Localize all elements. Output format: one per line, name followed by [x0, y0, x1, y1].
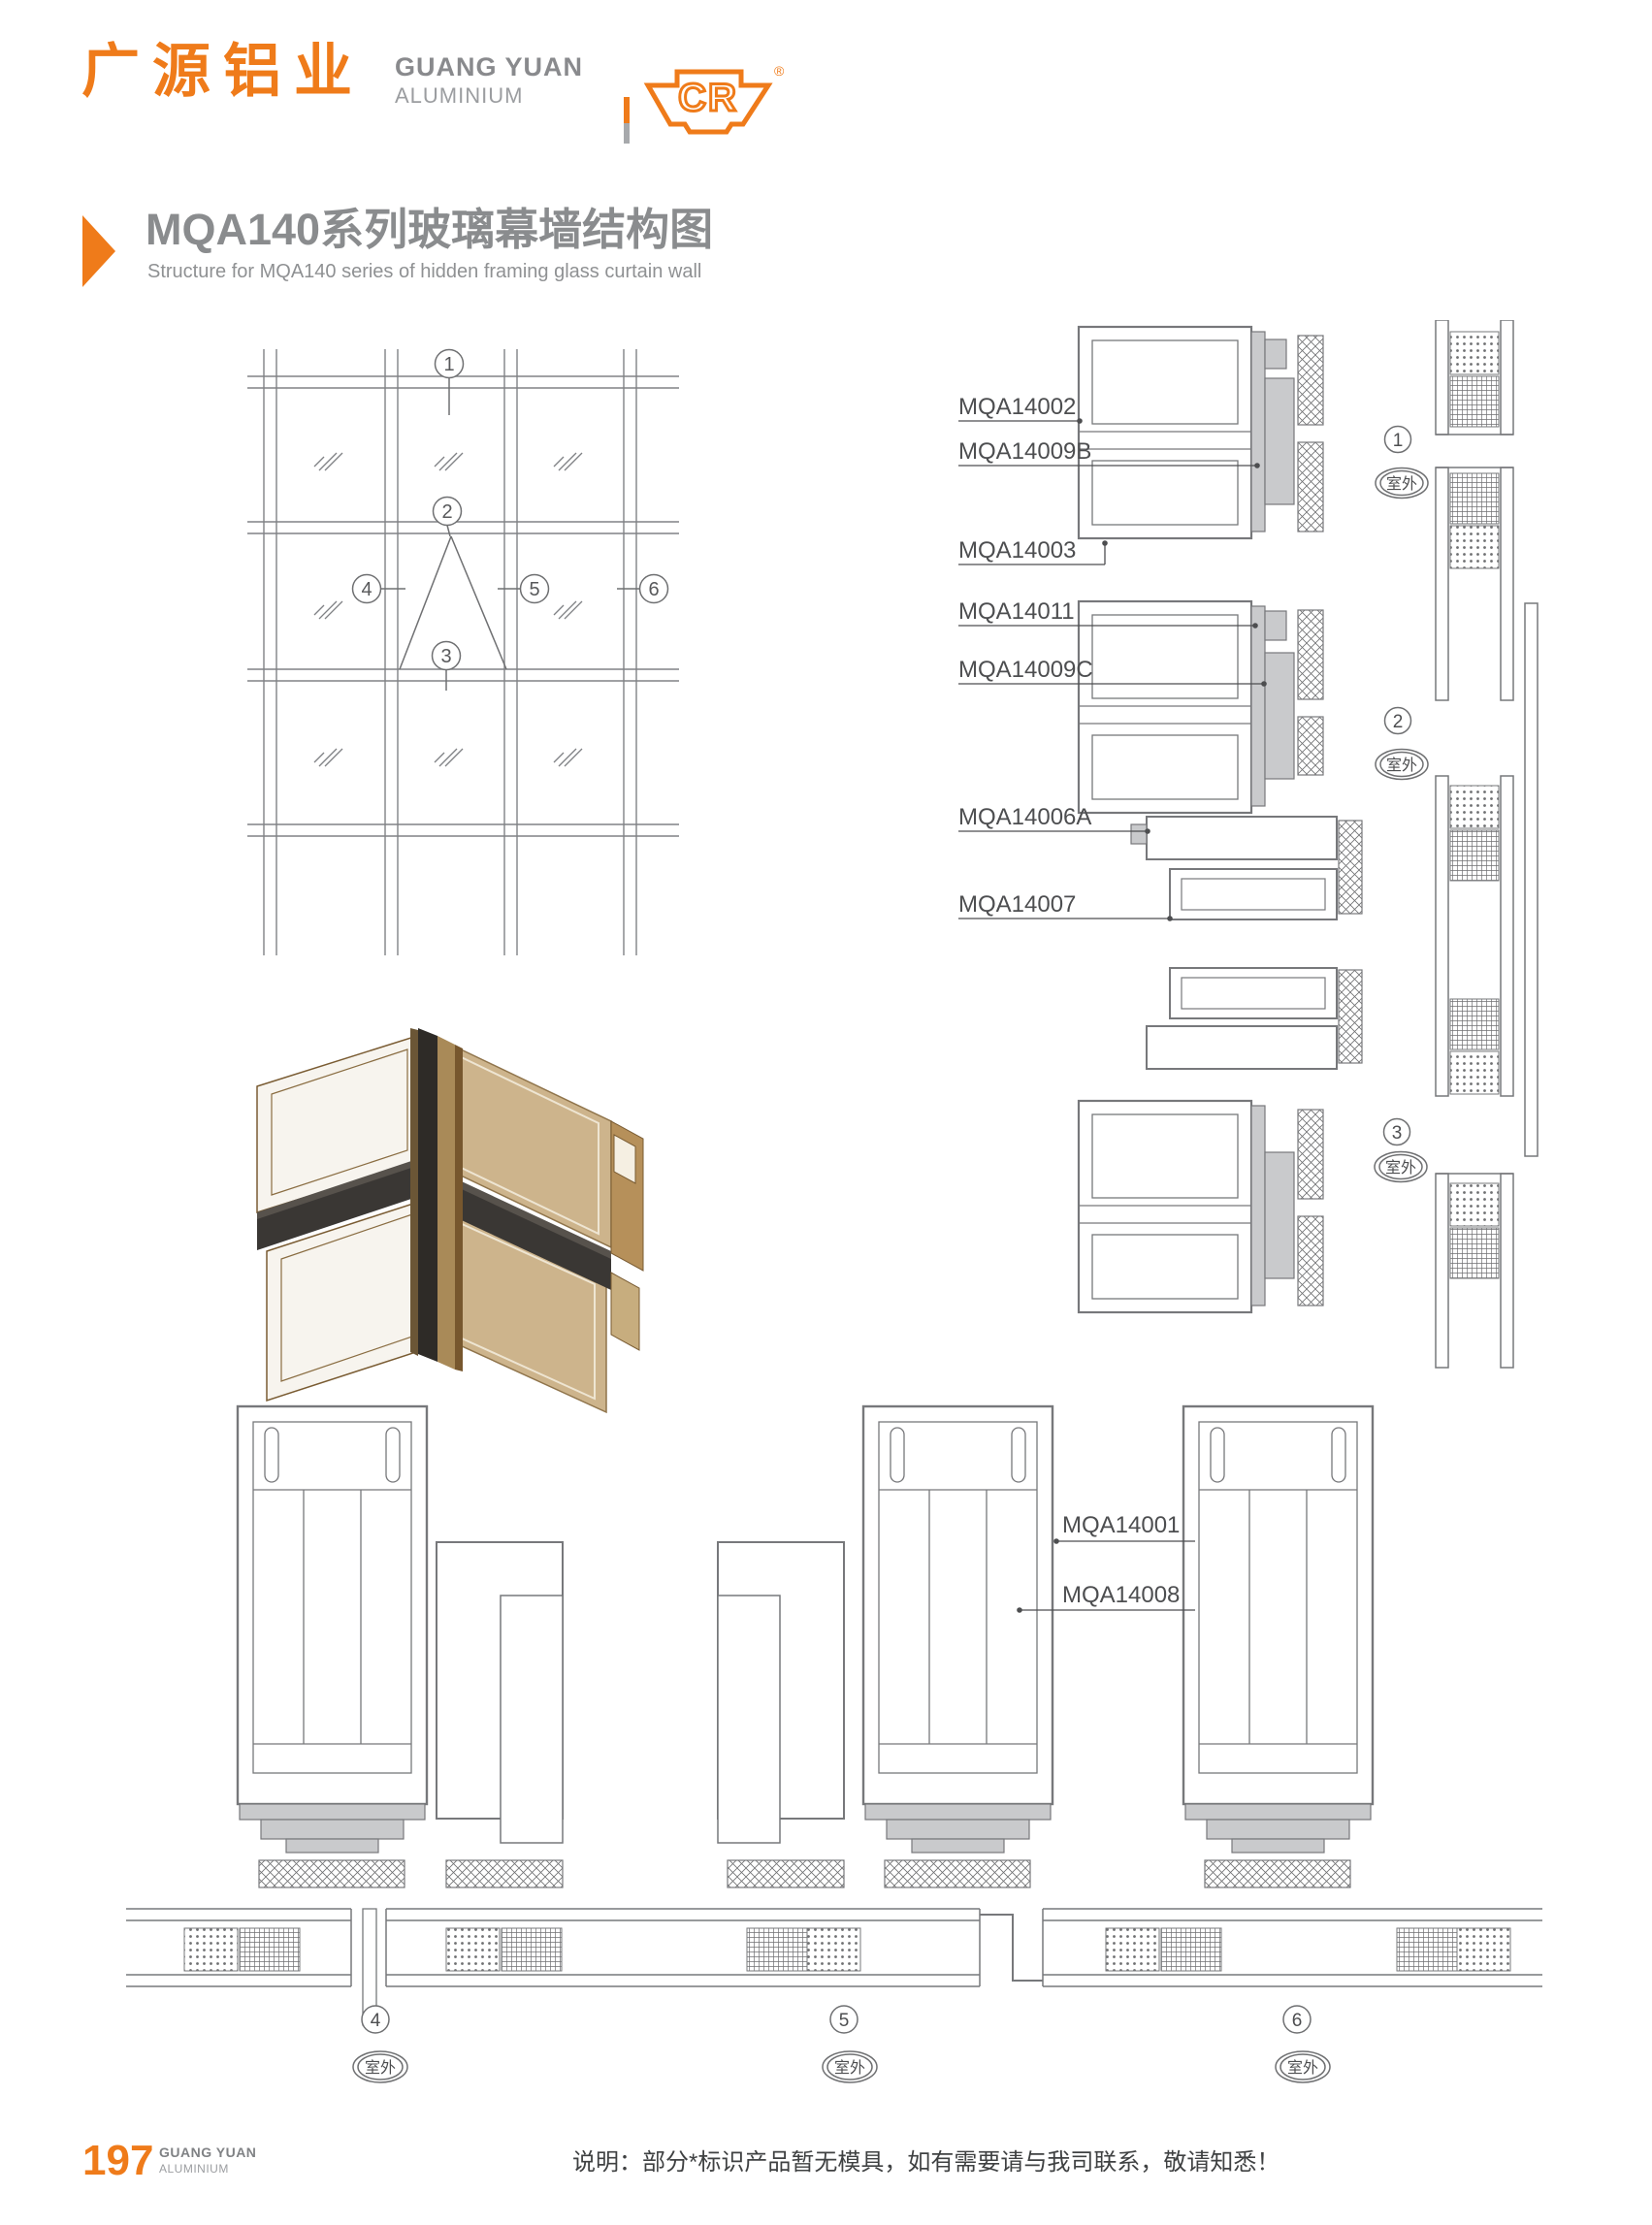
cr-logo-letters: CR	[678, 77, 738, 119]
logo-english-line2: ALUMINIUM	[395, 85, 523, 107]
detail-3-number: 3	[1392, 1123, 1403, 1144]
label-mqa14009c: MQA14009C	[958, 657, 1093, 683]
render-mullion	[410, 1028, 463, 1371]
transom-section-1	[1079, 327, 1323, 538]
logo-english-line1: GUANG YUAN	[395, 54, 583, 81]
footer-brand-line2: ALUMINIUM	[159, 2163, 229, 2175]
logo-divider	[624, 97, 630, 144]
label-mqa14001: MQA14001	[1062, 1512, 1180, 1538]
page-title: MQA140系列玻璃幕墙结构图	[146, 208, 713, 251]
registered-mark-icon: ®	[774, 63, 785, 79]
label-mqa14006a: MQA14006A	[958, 804, 1091, 830]
callout-4: 4	[361, 579, 372, 600]
vent-subframes	[437, 1542, 844, 1887]
glass-sections	[1436, 320, 1538, 1368]
bottom-callout-text: 4 室外 5 室外 6 室外	[365, 2011, 1318, 2077]
detail-4-number: 4	[371, 2011, 381, 2031]
elevation-grid	[247, 349, 679, 955]
callout-2: 2	[441, 501, 452, 523]
detail-6-outdoor: 室外	[1287, 2059, 1318, 2077]
horizontal-section-details: MQA14001 MQA14008 4 室外 5 室外 6 室外	[126, 1397, 1542, 2095]
detail-5-outdoor: 室外	[834, 2059, 865, 2077]
label-mqa14007: MQA14007	[958, 891, 1076, 918]
curtain-wall-3d-render	[228, 1028, 645, 1426]
label-mqa14002: MQA14002	[958, 394, 1076, 420]
detail-6-number: 6	[1292, 2011, 1303, 2031]
logo-chinese: 广源铝业	[81, 43, 365, 101]
bottom-section-labels: MQA14001 MQA14008	[1062, 1512, 1180, 1608]
callout-6: 6	[648, 579, 659, 600]
footer-note: 说明：部分*标识产品暂无模具，如有需要请与我司联系，敬请知悉！	[572, 2149, 1279, 2177]
detail-2-number: 2	[1393, 712, 1404, 732]
detail-3-outdoor: 室外	[1385, 1159, 1416, 1177]
vertical-section-details: MQA14002 MQA14009B MQA14003 MQA14011 MQA…	[931, 320, 1552, 1377]
label-mqa14009b: MQA14009B	[958, 438, 1091, 465]
detail-callouts	[1375, 427, 1428, 1182]
render-side-profiles	[611, 1121, 643, 1350]
detail-2-outdoor: 室外	[1386, 757, 1417, 774]
transom-section-2	[1079, 601, 1323, 813]
detail-5-number: 5	[839, 2011, 850, 2031]
callout-1: 1	[443, 354, 454, 375]
cr-logo: CR ®	[640, 60, 786, 144]
detail-4-outdoor: 室外	[365, 2059, 396, 2077]
mullion-section-c	[1183, 1406, 1373, 1887]
elevation-callout-numbers: 1 2 3 4 5 6	[361, 354, 659, 667]
page-subtitle: Structure for MQA140 series of hidden fr…	[147, 262, 701, 281]
vent-frame-sections	[1131, 817, 1362, 1069]
label-mqa14003: MQA14003	[958, 537, 1076, 564]
detail-1-outdoor: 室外	[1386, 475, 1417, 493]
glass-bands	[126, 1909, 1542, 2025]
title-arrow-icon	[82, 215, 115, 287]
callout-5: 5	[529, 579, 539, 600]
label-mqa14008: MQA14008	[1062, 1582, 1180, 1608]
detail-callout-text: 1 室外 2 室外 3 室外	[1385, 431, 1417, 1177]
page-number: 197	[82, 2140, 153, 2182]
label-mqa14011: MQA14011	[958, 598, 1075, 625]
mullion-section-b	[863, 1406, 1053, 1887]
transom-section-3	[1079, 1101, 1323, 1312]
section-labels: MQA14002 MQA14009B MQA14003 MQA14011 MQA…	[958, 394, 1093, 918]
elevation-callouts	[353, 350, 668, 692]
callout-3: 3	[440, 646, 451, 667]
mullion-section-a	[238, 1406, 427, 1887]
detail-1-number: 1	[1393, 431, 1404, 451]
elevation-diagram: 1 2 3 4 5 6	[223, 339, 698, 980]
footer-brand-line1: GUANG YUAN	[159, 2145, 256, 2159]
